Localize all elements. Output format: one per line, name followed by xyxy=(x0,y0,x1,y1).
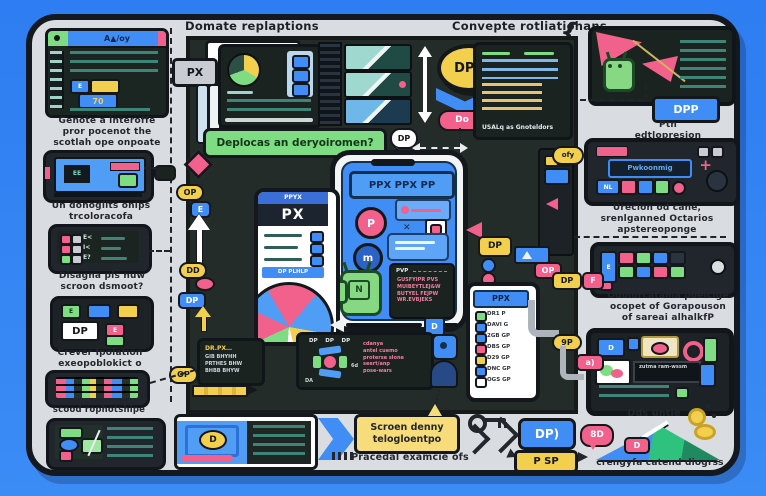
right-tablet-mockup: D zutma ram-wssm xyxy=(586,328,734,416)
li-t-1: DAVI G xyxy=(487,322,508,328)
browser-button-yellow[interactable] xyxy=(90,79,120,94)
diag-line xyxy=(632,40,685,82)
mountain-tag[interactable]: D xyxy=(624,437,650,454)
dashboard-footer xyxy=(225,118,313,122)
grid-b4[interactable] xyxy=(669,265,686,279)
yellow-arrow-head xyxy=(195,306,211,317)
slab-blue-rect xyxy=(544,168,570,185)
li-sq-2[interactable] xyxy=(475,333,487,344)
li-sq-0[interactable] xyxy=(475,311,487,322)
dp-device-green-chip[interactable]: E xyxy=(61,304,81,319)
tablet-dock xyxy=(54,193,142,197)
li-sq-4[interactable] xyxy=(475,355,487,366)
dashboard-lines xyxy=(227,99,311,113)
tablet-ee-box: EE xyxy=(64,165,90,183)
player-phone-mockup: Pwkoonmig + NL xyxy=(584,138,740,206)
row2-text: I< xyxy=(83,244,90,251)
pink-oval-divider xyxy=(195,277,215,291)
caption-dp-device: Crever Ipolation exeopoblokict o xyxy=(34,348,166,370)
blue-dot xyxy=(481,258,496,273)
slider-card[interactable] xyxy=(395,199,451,221)
bullet-list-panel: USALq as Gnoteldors xyxy=(473,42,573,140)
dpp-connector-h xyxy=(580,99,644,101)
dp-yellow-box[interactable]: DP xyxy=(478,236,512,257)
sidebar-sq-3[interactable] xyxy=(292,83,310,97)
dp-device-yellow-chip[interactable] xyxy=(117,304,139,319)
code-card-lines: GIB BHYHH PRTHES BHW BHBB BHYW xyxy=(205,354,242,374)
dot-small-2 xyxy=(712,414,716,418)
phone-header-band: PPX PPX PP xyxy=(349,171,455,199)
media-lines xyxy=(680,40,726,88)
slider-line xyxy=(411,209,441,212)
double-arrow-bottom-head xyxy=(418,112,432,123)
hexagon-icon xyxy=(313,347,347,377)
tab-green-col xyxy=(703,337,718,363)
dashboard-pie-chart xyxy=(227,53,261,87)
browser-text-lines xyxy=(70,51,158,75)
dashed-arrow-right-head xyxy=(460,143,468,153)
browser-sidebar xyxy=(50,51,64,109)
row-chip-blue[interactable] xyxy=(637,179,654,195)
psp-button[interactable]: P SP xyxy=(514,450,578,473)
video-right-pane xyxy=(247,421,311,464)
progress-bar[interactable] xyxy=(181,455,233,461)
browser-close-strip[interactable] xyxy=(158,31,166,46)
sidebar-sq-1[interactable] xyxy=(292,55,310,69)
li-t-2: 2GB GP xyxy=(487,333,510,339)
dp-button[interactable]: DP) xyxy=(518,418,576,450)
op-pill[interactable]: OP xyxy=(176,184,204,201)
tablet-mockup: EE xyxy=(43,150,154,203)
grid-b1[interactable] xyxy=(618,265,635,279)
caption-mountain: crengyfa catend diogrss xyxy=(590,458,730,469)
hex-da-label: DA xyxy=(305,378,313,384)
browser-button-e[interactable]: E xyxy=(70,79,90,94)
tab-blue-small[interactable] xyxy=(627,337,640,351)
white-phone-header1: PPYX xyxy=(258,192,328,204)
player-title-bar[interactable]: Pwkoonmig xyxy=(608,159,692,178)
grid-a1[interactable] xyxy=(618,251,635,265)
dds-units-text: Dds untle xyxy=(618,408,690,419)
row1-text: E< xyxy=(83,234,92,241)
vertical-double-arrow-stem xyxy=(423,56,427,114)
tab-blue-chip2 xyxy=(699,363,716,387)
code-card-title: DR.PX… xyxy=(205,345,232,352)
p-circle-badge[interactable]: P xyxy=(355,207,387,239)
li-sq-1[interactable] xyxy=(475,322,487,333)
tab-bottom-lines xyxy=(599,385,669,397)
speech-bubble: Scroen denny telogloentpo xyxy=(354,414,460,454)
row3-gray-chip xyxy=(71,254,83,265)
li-t-0: DR1 P xyxy=(487,311,506,317)
dp-device-mockup: E DP E xyxy=(50,296,154,352)
dashboard-sidebar xyxy=(287,51,313,97)
tab-pink-donut xyxy=(683,341,704,362)
cursor-person-icon xyxy=(430,360,458,388)
pipe-elbow-right xyxy=(560,346,584,380)
video-left-pane: D xyxy=(177,421,247,464)
video-text-lines xyxy=(253,425,305,461)
li-t-5: DNC GP xyxy=(487,366,511,372)
ofy-tag[interactable]: ofy xyxy=(552,146,584,165)
up-arrow-head xyxy=(188,214,210,230)
window-card-3 xyxy=(344,98,412,125)
tab-dot-icon xyxy=(54,35,60,41)
tab-green-small xyxy=(675,387,689,399)
bullet-footer-text: USALq as Gnoteldors xyxy=(482,124,553,131)
caption-mid: Urecion od cane, srenlganned Octarios ap… xyxy=(586,203,728,235)
hex-top-labels: DP DP DP xyxy=(309,338,350,344)
pink-left-arrow xyxy=(466,222,482,238)
connector-rows-phone xyxy=(148,250,170,252)
row3-text: E? xyxy=(83,254,91,261)
player-icon-2[interactable] xyxy=(711,146,724,158)
tablet-pink-bar xyxy=(110,162,140,171)
connector-top xyxy=(144,167,156,169)
timeline-track-end xyxy=(444,323,458,327)
pixel-grid-screen xyxy=(56,377,138,398)
pipe-elbow xyxy=(528,300,559,337)
striped-bar xyxy=(318,42,342,126)
dp-device-dp-label: DP xyxy=(61,321,99,341)
list-phone-header: PPX xyxy=(473,290,529,308)
caption-pixel: scood rophotshipe xyxy=(44,405,154,415)
row-chip-green[interactable] xyxy=(654,179,670,195)
wrow-highlight[interactable]: DP PLHLP xyxy=(262,267,324,278)
android-robot-icon: N xyxy=(334,262,382,316)
card-pink-dot xyxy=(399,81,406,88)
heading-right: Convepte rotliatiohans xyxy=(452,19,607,33)
tab-framed-box xyxy=(641,336,679,358)
wrow2-sq[interactable] xyxy=(310,243,324,255)
browser-button-70[interactable]: 70 xyxy=(78,93,118,109)
browser-footer-lines xyxy=(70,108,150,114)
caption-browser: Genote a interoffe pror pocenot the scot… xyxy=(32,116,182,148)
bl-pink-chip xyxy=(59,450,73,462)
speech-card xyxy=(387,233,449,261)
window-card-1 xyxy=(344,44,412,71)
settings-cross-icon: ✕ xyxy=(403,223,411,233)
speech-bubble-tail xyxy=(428,404,442,416)
practical-text: Pracedal examcie ofs xyxy=(350,452,470,463)
wrow1-sq[interactable] xyxy=(310,231,324,243)
tablet-screen: EE xyxy=(54,157,146,193)
pixel-phone-mockup xyxy=(45,370,150,408)
sidebar-sq-2[interactable] xyxy=(292,69,310,83)
caption-compare: Odolorcatama poelcige ocopet of Gorapous… xyxy=(602,291,734,323)
dot-small-1 xyxy=(706,404,710,408)
grid-a3[interactable] xyxy=(652,251,669,265)
double-arrow-top-head xyxy=(418,46,432,57)
white-phone-mockup: PPYX PX DP PLHLP xyxy=(254,188,340,346)
dp-device-green-chip2[interactable] xyxy=(105,335,125,347)
hex-diagram-panel: DP DP DP DA 6d cdanya antel cuemo proter… xyxy=(296,332,434,390)
dp-tag-right[interactable]: DP xyxy=(552,272,582,290)
dashed-arrow-line xyxy=(420,147,460,149)
dpp-button[interactable]: DPP xyxy=(652,96,720,123)
divider-dark-chip xyxy=(154,165,176,181)
li-t-6: OGS GP xyxy=(487,377,511,383)
grid-b2[interactable] xyxy=(635,265,652,279)
slider-dot[interactable] xyxy=(401,206,409,214)
media-android-icon xyxy=(600,52,634,92)
right-divider-dashed xyxy=(574,236,726,238)
dp-device-blue-chip[interactable] xyxy=(87,304,111,319)
hex-6d-label: 6d xyxy=(351,363,358,369)
bl-text-lines xyxy=(107,427,153,457)
bottom-left-phone xyxy=(46,418,166,470)
caption-rows: Disagna pls nuw scroon dsmoot? xyxy=(32,271,172,293)
home-button[interactable] xyxy=(710,259,726,275)
app-grid-phone: E xyxy=(590,242,738,298)
slab-pink-arrow xyxy=(546,198,558,210)
sd-bubble-tail xyxy=(588,442,598,450)
dashboard-panel xyxy=(218,44,322,128)
list-phone-mockup: E< I< E? xyxy=(48,224,152,274)
infographic-stage: Domate replaptions Convepte rotliatiohan… xyxy=(0,0,766,496)
tablet-green-chip[interactable] xyxy=(118,173,138,188)
bullet-yellow-lines xyxy=(482,83,542,115)
flag-tag[interactable]: F xyxy=(582,272,604,290)
li-sq-3[interactable] xyxy=(475,344,487,355)
pencil-tip xyxy=(246,384,258,396)
left-arrow-icon xyxy=(330,318,344,332)
hex-code-lines: cdanya antel cuemo proterse slone seert/… xyxy=(363,341,404,375)
arrow-to-mountain xyxy=(578,452,588,462)
tablet-side-chip xyxy=(45,167,50,179)
window-card-2 xyxy=(344,71,412,98)
media-panel xyxy=(588,26,736,106)
li-sq-6[interactable] xyxy=(475,377,487,388)
play-d-badge[interactable]: D xyxy=(199,430,227,450)
bl-phone-left-pane xyxy=(55,425,103,459)
player-pink-bar xyxy=(596,146,628,157)
row-chip-pink[interactable] xyxy=(620,179,637,195)
mountain-diagram xyxy=(596,426,720,460)
dp-px-code-card: DR.PX… GIB BHYHH PRTHES BHW BHBB BHYW xyxy=(197,338,265,386)
phone-code-panel: PVP GUSFYIPR PVS MUIBEYTLEJ&W BUTYEL FEJ… xyxy=(389,263,455,319)
li-t-3: DBS GP xyxy=(487,344,510,350)
blue-app-icon[interactable] xyxy=(432,334,458,360)
heading-left: Domate replaptions xyxy=(185,19,319,33)
caption-tablet: Un donoglits onips trcoloracofa xyxy=(36,201,166,223)
li-t-4: D29 GP xyxy=(487,355,510,361)
row-dot-pink xyxy=(672,181,686,195)
player-circle-icon[interactable] xyxy=(706,170,728,192)
yellow-arrow-stem xyxy=(201,316,207,332)
li-sq-5[interactable] xyxy=(475,366,487,377)
nl-chip[interactable]: NL xyxy=(596,179,620,195)
browser-title-bar[interactable]: A▲/oy xyxy=(68,31,166,48)
phone-notch xyxy=(371,159,415,166)
browser-tab-green[interactable] xyxy=(48,31,70,46)
code-lines: GUSFYIPR PVS MUIBEYTLEJ&W BUTYEL FEJPW W… xyxy=(397,277,441,304)
bullet-blue-lines xyxy=(482,59,558,79)
list-phone-screen: E< I< E? xyxy=(57,231,139,263)
grid-a4[interactable] xyxy=(669,251,686,265)
pencil-body xyxy=(192,385,248,397)
code-header: PVP xyxy=(396,268,408,274)
video-card-mockup: D xyxy=(174,414,318,470)
tab-dark-bar: zutma ram-wssm xyxy=(633,361,701,383)
timeline-track[interactable] xyxy=(346,323,422,327)
px-tag[interactable]: PX xyxy=(172,58,218,87)
white-phone-header2: PX xyxy=(258,204,328,226)
android-letter: N xyxy=(348,280,370,300)
wrow3-sq[interactable] xyxy=(310,255,324,267)
dpp-connector-v xyxy=(645,84,647,100)
browser-window-mockup: A▲/oy E 70 xyxy=(45,28,169,118)
grid-b3[interactable] xyxy=(652,265,669,279)
grid-a2[interactable] xyxy=(635,251,652,265)
